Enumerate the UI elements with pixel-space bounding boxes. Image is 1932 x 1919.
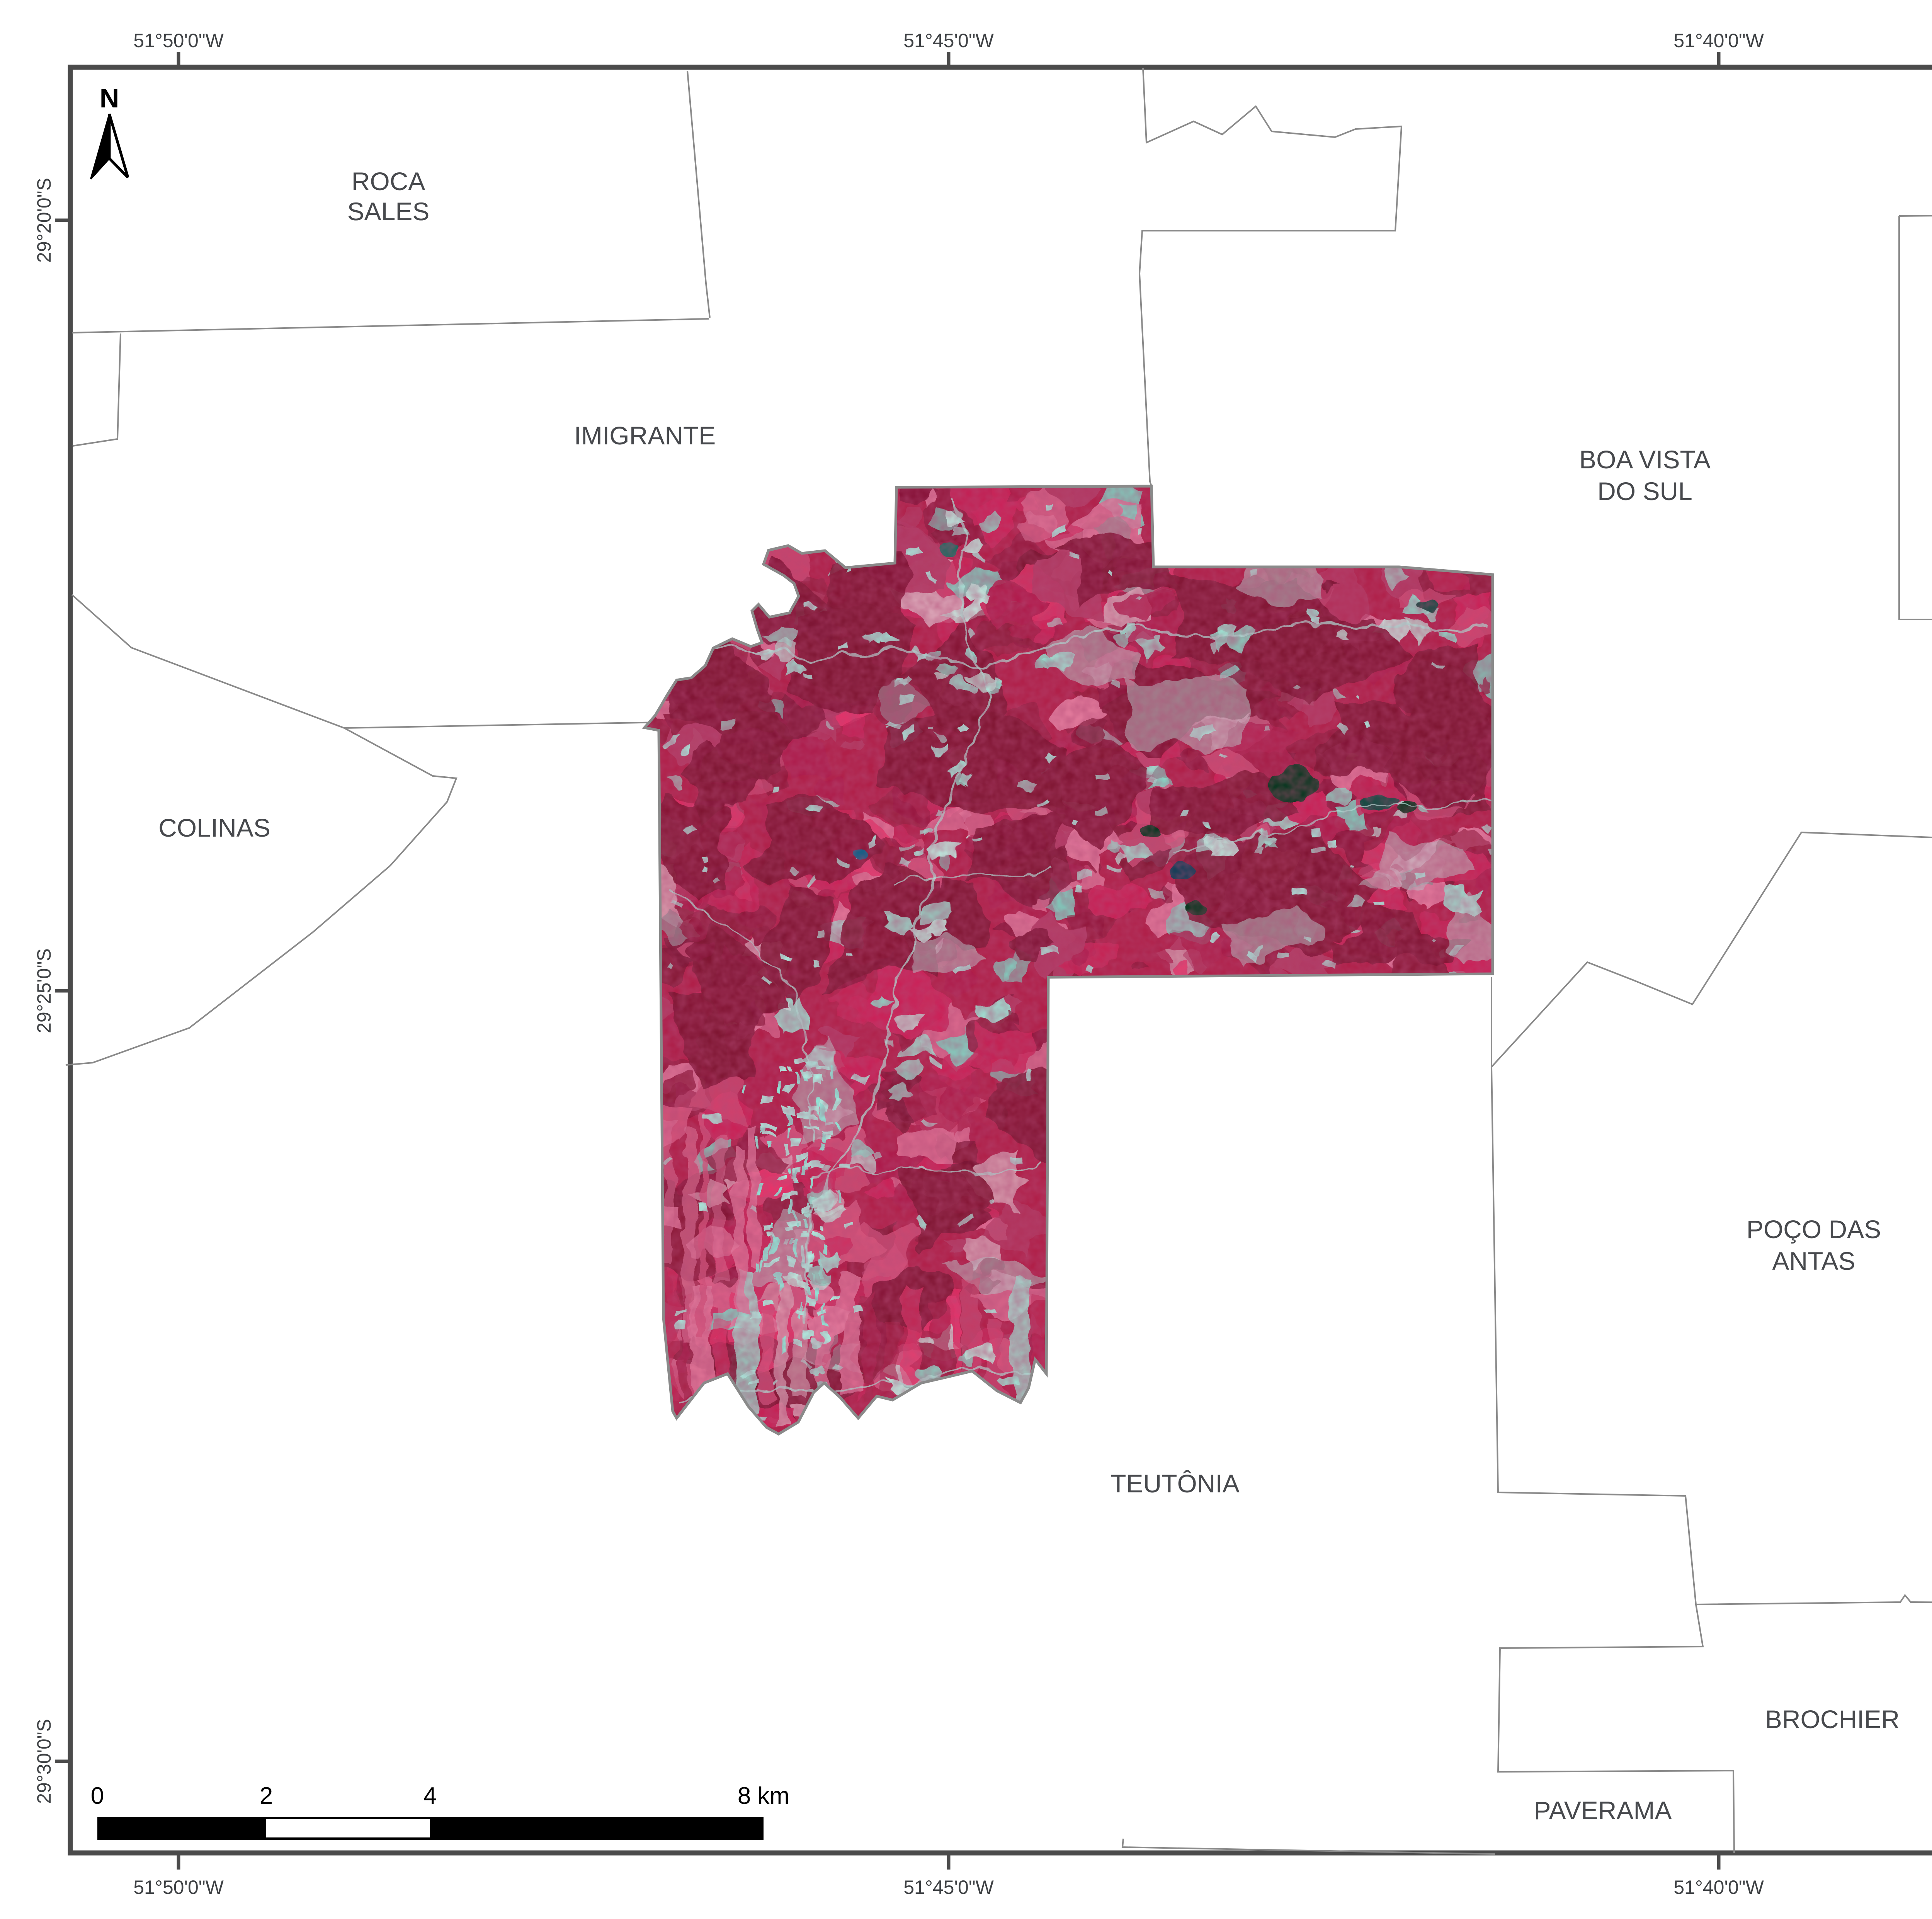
svg-text:51°45'0"W: 51°45'0"W: [903, 30, 994, 51]
svg-text:TEUTÔNIA: TEUTÔNIA: [1111, 1469, 1240, 1498]
svg-text:51°50'0"W: 51°50'0"W: [133, 30, 224, 51]
svg-text:DO SUL: DO SUL: [1597, 477, 1692, 505]
svg-text:BROCHIER: BROCHIER: [1765, 1705, 1900, 1734]
svg-text:ANTAS: ANTAS: [1772, 1247, 1855, 1275]
svg-text:N: N: [100, 83, 119, 113]
svg-text:POÇO DAS: POÇO DAS: [1747, 1215, 1881, 1244]
svg-text:2: 2: [260, 1783, 273, 1809]
svg-text:8 km: 8 km: [738, 1783, 789, 1809]
svg-text:4: 4: [423, 1783, 437, 1809]
svg-text:29°20'0"S: 29°20'0"S: [33, 178, 55, 263]
svg-text:IMIGRANTE: IMIGRANTE: [574, 421, 716, 450]
svg-text:51°40'0"W: 51°40'0"W: [1673, 1876, 1764, 1898]
svg-text:SALES: SALES: [347, 197, 430, 226]
svg-text:29°30'0"S: 29°30'0"S: [33, 1719, 55, 1804]
svg-text:51°50'0"W: 51°50'0"W: [133, 1876, 224, 1898]
svg-text:0: 0: [91, 1783, 104, 1809]
svg-text:51°45'0"W: 51°45'0"W: [903, 1876, 994, 1898]
svg-text:51°40'0"W: 51°40'0"W: [1673, 30, 1764, 51]
svg-text:29°25'0"S: 29°25'0"S: [33, 948, 55, 1033]
svg-text:PAVERAMA: PAVERAMA: [1534, 1796, 1672, 1825]
svg-text:COLINAS: COLINAS: [158, 813, 270, 842]
svg-text:ROCA: ROCA: [352, 167, 425, 196]
svg-text:BOA VISTA: BOA VISTA: [1579, 445, 1711, 474]
